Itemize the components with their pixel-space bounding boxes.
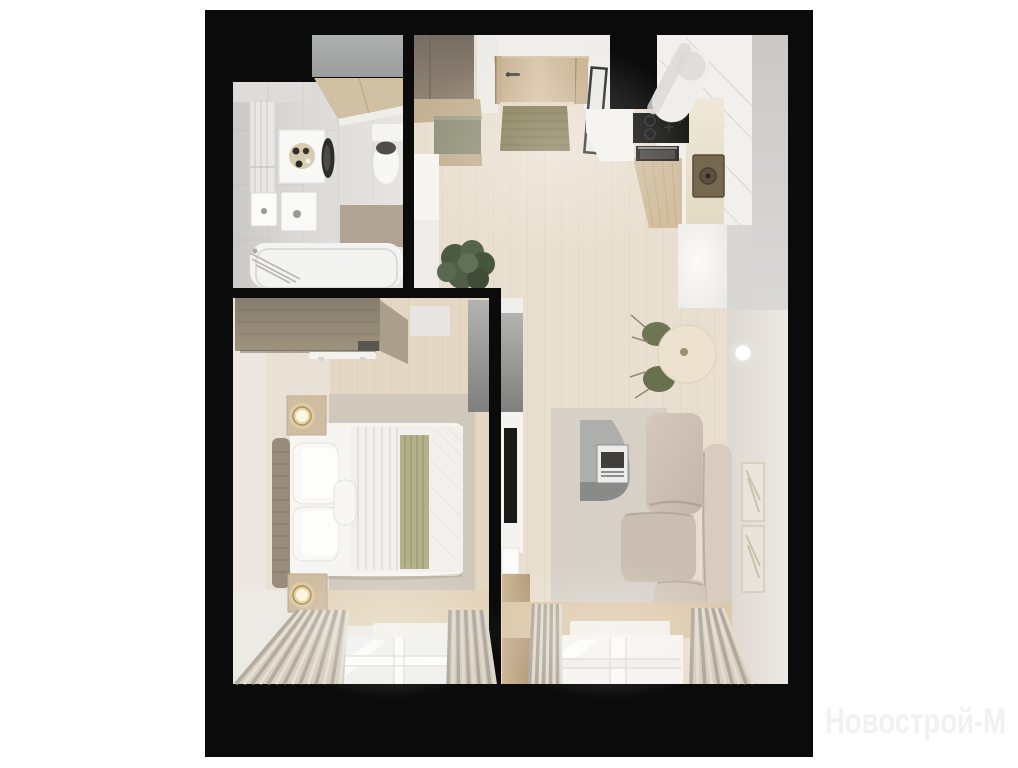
- svg-text:Новострой-М: Новострой-М: [825, 702, 1006, 741]
